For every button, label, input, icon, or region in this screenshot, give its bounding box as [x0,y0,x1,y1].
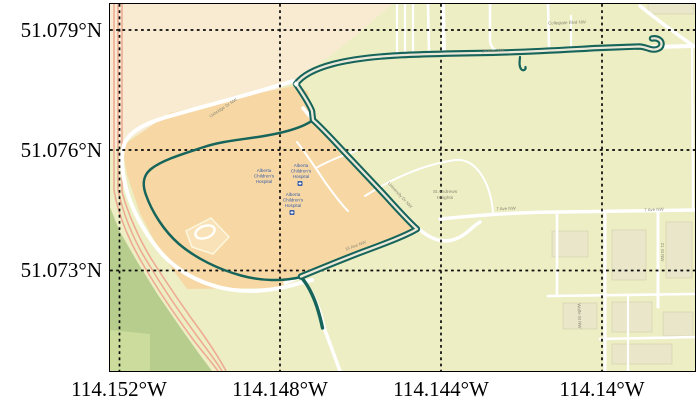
road-label: 21 St NW [660,243,665,263]
road-label: 24 Ave NW [482,48,505,54]
map-plot-area: Alberta Children's Hospital Alberta Chil… [109,3,696,372]
road-label: 7 Ave NW [644,207,664,213]
hospital-icon [298,181,303,186]
x-tick-label: 114.14°W [559,377,644,402]
y-tick-label: 51.076°N [2,139,102,161]
neighborhood-label-line: St Andrews [433,189,458,195]
hospital-label-line: Alberta [257,168,272,173]
hospital-label-line: Hospital [285,203,302,208]
road-label: 7 Ave NW [496,206,516,212]
x-tick-label: 114.148°W [232,377,328,402]
map-canvas: Alberta Children's Hospital Alberta Chil… [110,4,695,371]
hospital-label-line: Children's [283,198,304,203]
neighborhood-label-line: Heights [437,195,454,201]
y-tick-label: 51.073°N [2,259,102,281]
hospital-label-line: Children's [291,169,312,174]
hospital-label-line: Hospital [256,179,273,184]
hospital-label-line: Hospital [293,174,310,179]
x-tick-label: 114.144°W [393,377,489,402]
road-label: Wolfe St NW [577,303,583,329]
y-tick-label: 51.079°N [2,19,102,41]
hospital-label-line: Children's [254,174,275,179]
hospital-icon [290,210,295,215]
x-tick-label: 114.152°W [71,377,167,402]
hospital-label-line: Alberta [286,192,301,197]
map-figure: 51.079°N 51.076°N 51.073°N 114.152°W 114… [0,0,700,405]
hospital-label-line: Alberta [294,163,309,168]
map-area-park-light [110,330,150,371]
